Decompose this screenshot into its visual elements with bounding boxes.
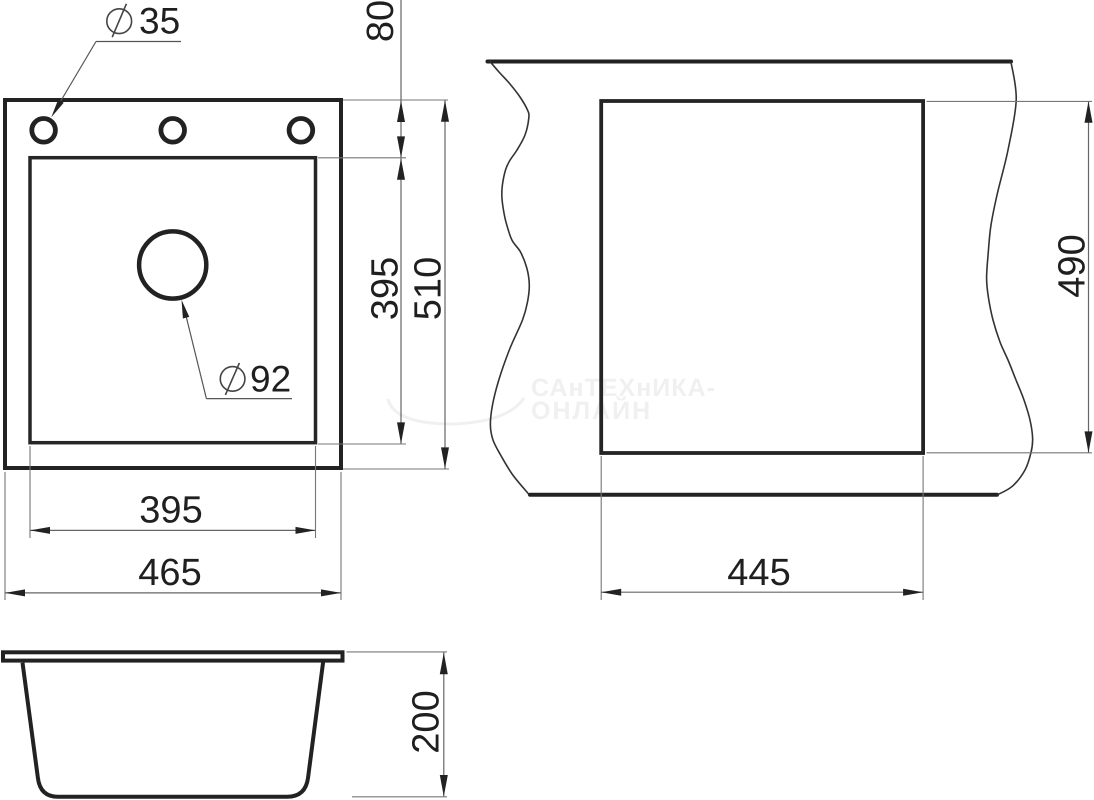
svg-text:465: 465	[138, 552, 201, 594]
svg-text:395: 395	[365, 257, 407, 320]
svg-text:490: 490	[1052, 234, 1094, 297]
svg-text:510: 510	[408, 257, 450, 320]
svg-text:92: 92	[250, 359, 291, 400]
svg-text:35: 35	[139, 1, 180, 42]
svg-text:395: 395	[139, 490, 202, 532]
svg-text:445: 445	[727, 552, 790, 594]
svg-text:200: 200	[406, 690, 448, 753]
svg-text:80: 80	[360, 0, 402, 42]
svg-text:ОНЛАЙН: ОНЛАЙН	[531, 396, 652, 425]
